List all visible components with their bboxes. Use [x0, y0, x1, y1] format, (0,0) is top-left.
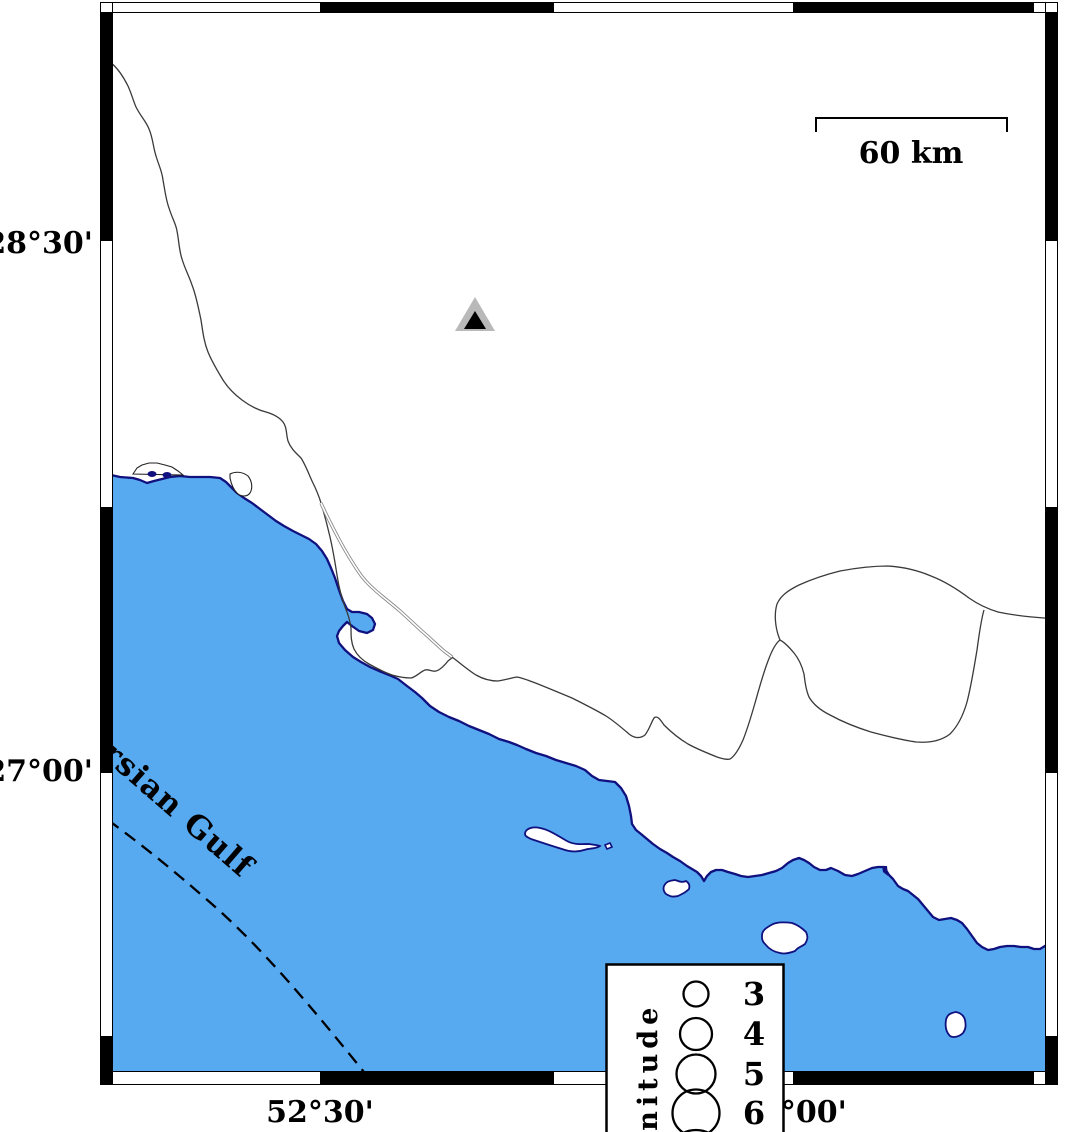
lon-label-52-30: 52°30' [266, 1095, 374, 1130]
harbor-dot [163, 472, 172, 478]
legend-title-magnitude: Magnitude [633, 1003, 664, 1132]
lat-label-28-30: 28°30' [0, 226, 93, 261]
harbor-dot [148, 471, 157, 477]
islet-tiny [605, 843, 612, 849]
map-canvas: Persian Gulf 28°30' 27°00' 52°30' 53°00'… [0, 0, 1066, 1132]
legend-label-m3: 3 [743, 975, 765, 1013]
magnitude-legend: Magnitude 3 4 5 6 [607, 965, 784, 1132]
legend-label-m5: 5 [743, 1055, 765, 1093]
road-line-casing [321, 503, 452, 657]
basin-loop-lower-line [780, 610, 984, 742]
sea-polygon [107, 474, 1058, 1072]
road-line-center [321, 503, 452, 657]
scale-bar [816, 118, 1007, 132]
coastal-spit [133, 463, 183, 475]
island-far-east [946, 1012, 966, 1037]
scale-bar-label: 60 km [859, 136, 964, 171]
basin-loop-upper-line [775, 566, 1058, 640]
map-svg: Persian Gulf 28°30' 27°00' 52°30' 53°00'… [0, 0, 1066, 1132]
legend-label-m4: 4 [743, 1015, 765, 1053]
lat-label-27-00: 27°00' [0, 754, 93, 789]
legend-label-m6: 6 [743, 1094, 765, 1132]
